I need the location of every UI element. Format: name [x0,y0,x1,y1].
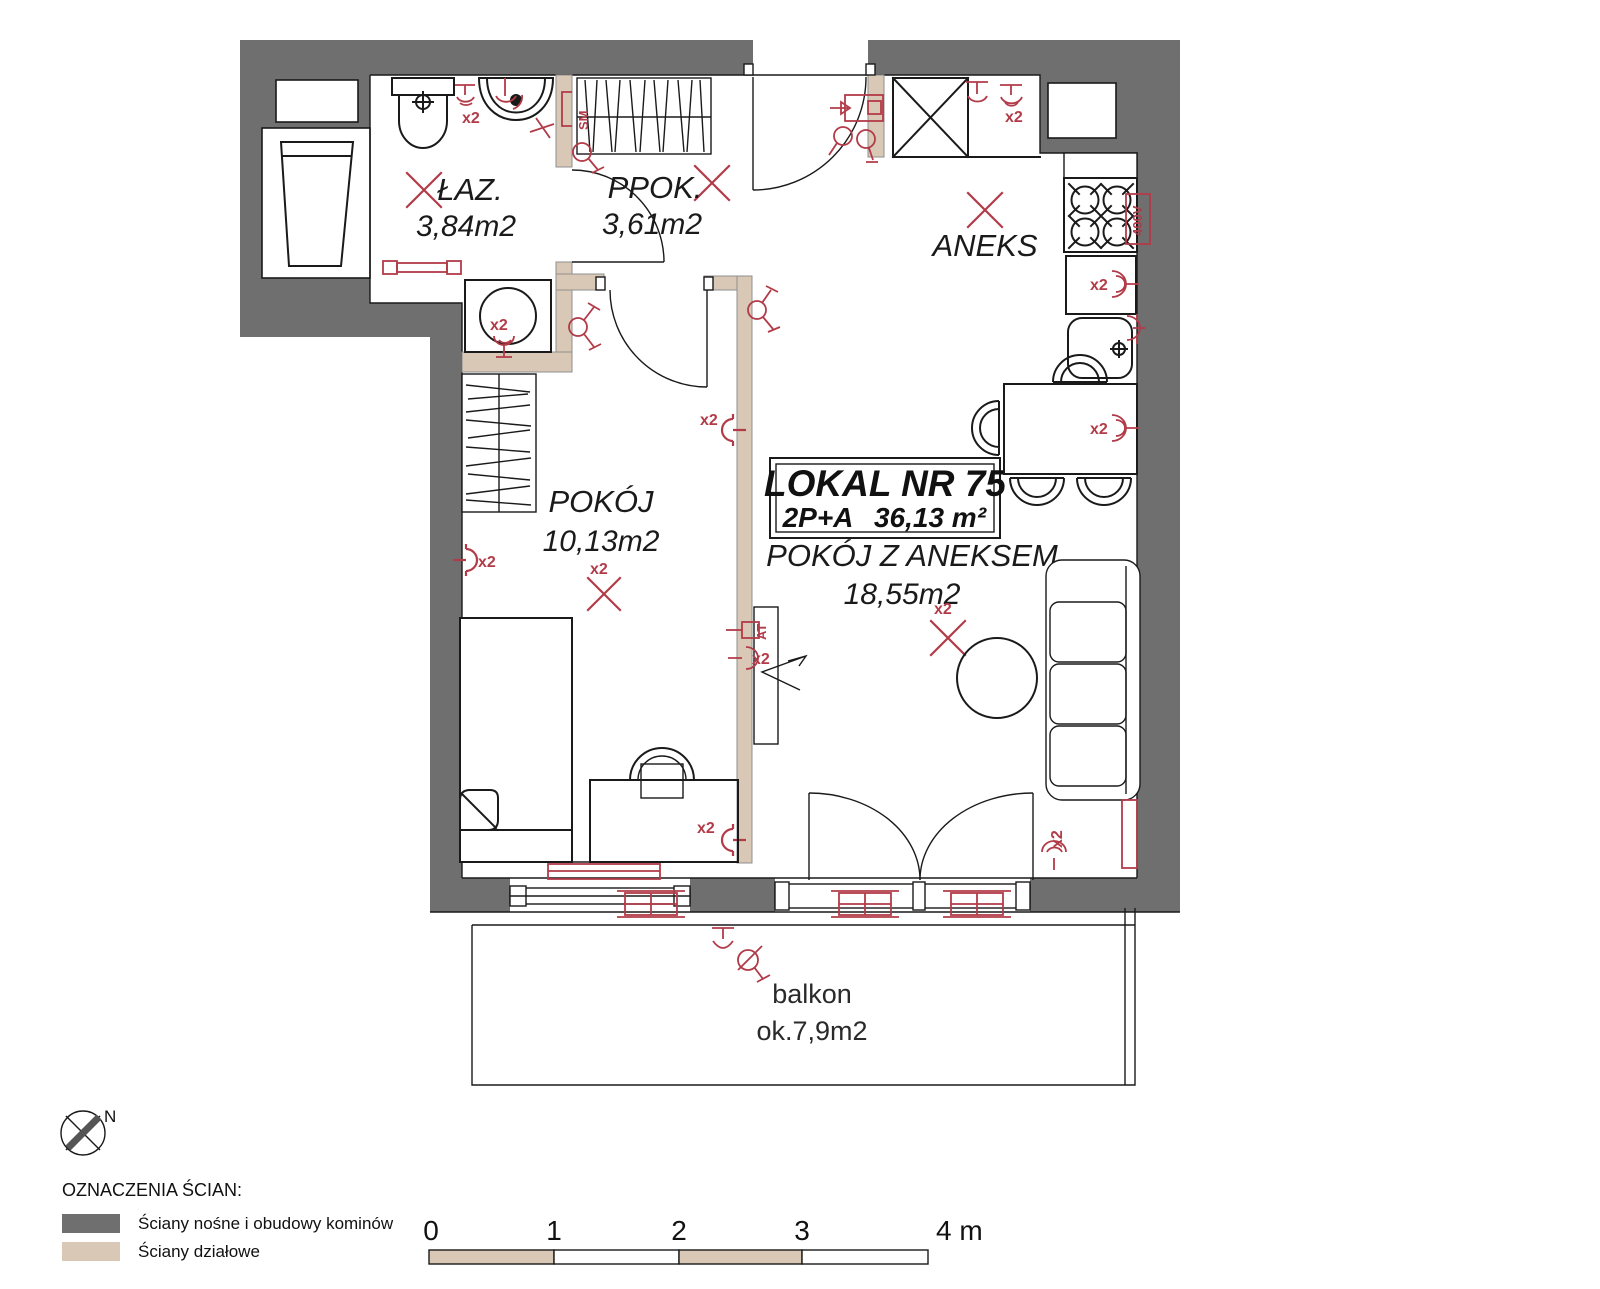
bathroom-sink [479,78,553,120]
balcony: balkon ok.7,9m2 [472,908,1135,1085]
kitchen-sink [1068,318,1132,378]
svg-text:0: 0 [423,1215,439,1246]
scale-bar: 0 1 2 3 4 m [423,1215,982,1264]
svg-text:x2: x2 [590,561,608,578]
svg-text:x2: x2 [1090,421,1108,438]
living-name: POKÓJ Z ANEKSEM [766,538,1058,573]
svg-text:400V: 400V [1130,205,1145,236]
bedroom: POKÓJ 10,13m2 x2 x2 x2 x2 [453,374,746,879]
living-radiator [1122,800,1137,868]
bedroom-wardrobe [462,374,536,512]
legend-swatch-bearing [62,1214,120,1233]
kitchen-counter2: x2 [1066,256,1139,314]
balcony-door-left [809,793,920,880]
svg-text:x2: x2 [934,601,952,618]
bedroom-name: POKÓJ [548,484,654,519]
svg-text:x2: x2 [478,554,496,571]
hall-switch-2 [748,286,780,332]
hallway: SM PPOK. 3,61m2 [562,78,883,350]
balcony-area: ok.7,9m2 [756,1016,867,1046]
load-bearing-walls [240,40,1180,912]
desk-and-chair [590,748,738,862]
north-label: N [104,1107,116,1126]
bedroom-area: 10,13m2 [543,525,660,558]
svg-text:x2: x2 [1049,830,1066,848]
svg-text:3: 3 [794,1215,810,1246]
bedroom-radiator [548,864,660,879]
svg-text:x2: x2 [697,820,715,837]
hall-wardrobe [577,78,711,154]
hall-name: PPOK. [608,170,703,205]
north-compass: N [61,1107,116,1155]
shower [281,142,353,266]
bathroom-ceiling-light [407,173,441,207]
entrance-door [753,77,866,190]
kitchen-name: ANEKS [930,228,1037,263]
bedroom-door [610,290,707,387]
legend-label-partition: Ściany działowe [138,1242,260,1261]
bedroom-window [510,886,690,906]
unit-area: 36,13 m² [874,502,987,533]
towel-radiator [383,261,461,274]
svg-text:x2: x2 [752,651,770,668]
svg-text:AT: AT [754,624,769,640]
svg-text:x2: x2 [1005,109,1023,126]
kitchen-ceiling-light [968,193,1002,227]
balcony-door-right [920,793,1033,880]
wall-legend: OZNACZENIA ŚCIAN: Ściany nośne i obudowy… [62,1179,394,1261]
bed [460,618,572,862]
svg-text:1: 1 [546,1215,562,1246]
dining-table [1004,384,1137,474]
kitchen-counter-top [1064,153,1137,178]
fridge [893,78,968,157]
legend-heading: OZNACZENIA ŚCIAN: [62,1179,242,1200]
balcony-lamp-and-switch [712,928,770,982]
svg-text:4 m: 4 m [936,1215,983,1246]
kitchen-top-lamps: x2 [966,82,1023,126]
svg-text:x2: x2 [490,317,508,334]
bedroom-ceiling-light: x2 [588,561,620,610]
svg-text:x2: x2 [462,110,480,127]
svg-text:x2: x2 [700,412,718,429]
legend-label-bearing: Ściany nośne i obudowy kominów [138,1214,394,1233]
svg-text:SM: SM [576,111,591,131]
legend-swatch-partition [62,1242,120,1261]
sofa [1046,560,1140,800]
hall-area: 3,61m2 [602,208,702,241]
bathroom-name: ŁAZ. [437,172,502,207]
unit-layout: 2P+A [782,502,854,533]
svg-text:x2: x2 [1090,277,1108,294]
floorplan-page: balkon ok.7,9m2 [0,0,1600,1289]
living-room: LOKAL NR 75 2P+A 36,13 m² POKÓJ Z ANEKSE… [726,355,1140,870]
hall-switch [569,303,601,350]
toilet [392,78,454,148]
unit-title-box: LOKAL NR 75 2P+A 36,13 m² [764,458,1007,538]
balcony-name: balkon [772,979,852,1009]
floorplan-drawing: balkon ok.7,9m2 [0,0,1600,1289]
balcony-glazing [775,882,1030,910]
bathroom-area: 3,84m2 [416,210,516,243]
svg-text:2: 2 [671,1215,687,1246]
washer [465,280,551,352]
balcony-door-socket: x2 [1042,830,1066,870]
unit-title: LOKAL NR 75 [764,463,1007,504]
coffee-table [957,638,1037,718]
